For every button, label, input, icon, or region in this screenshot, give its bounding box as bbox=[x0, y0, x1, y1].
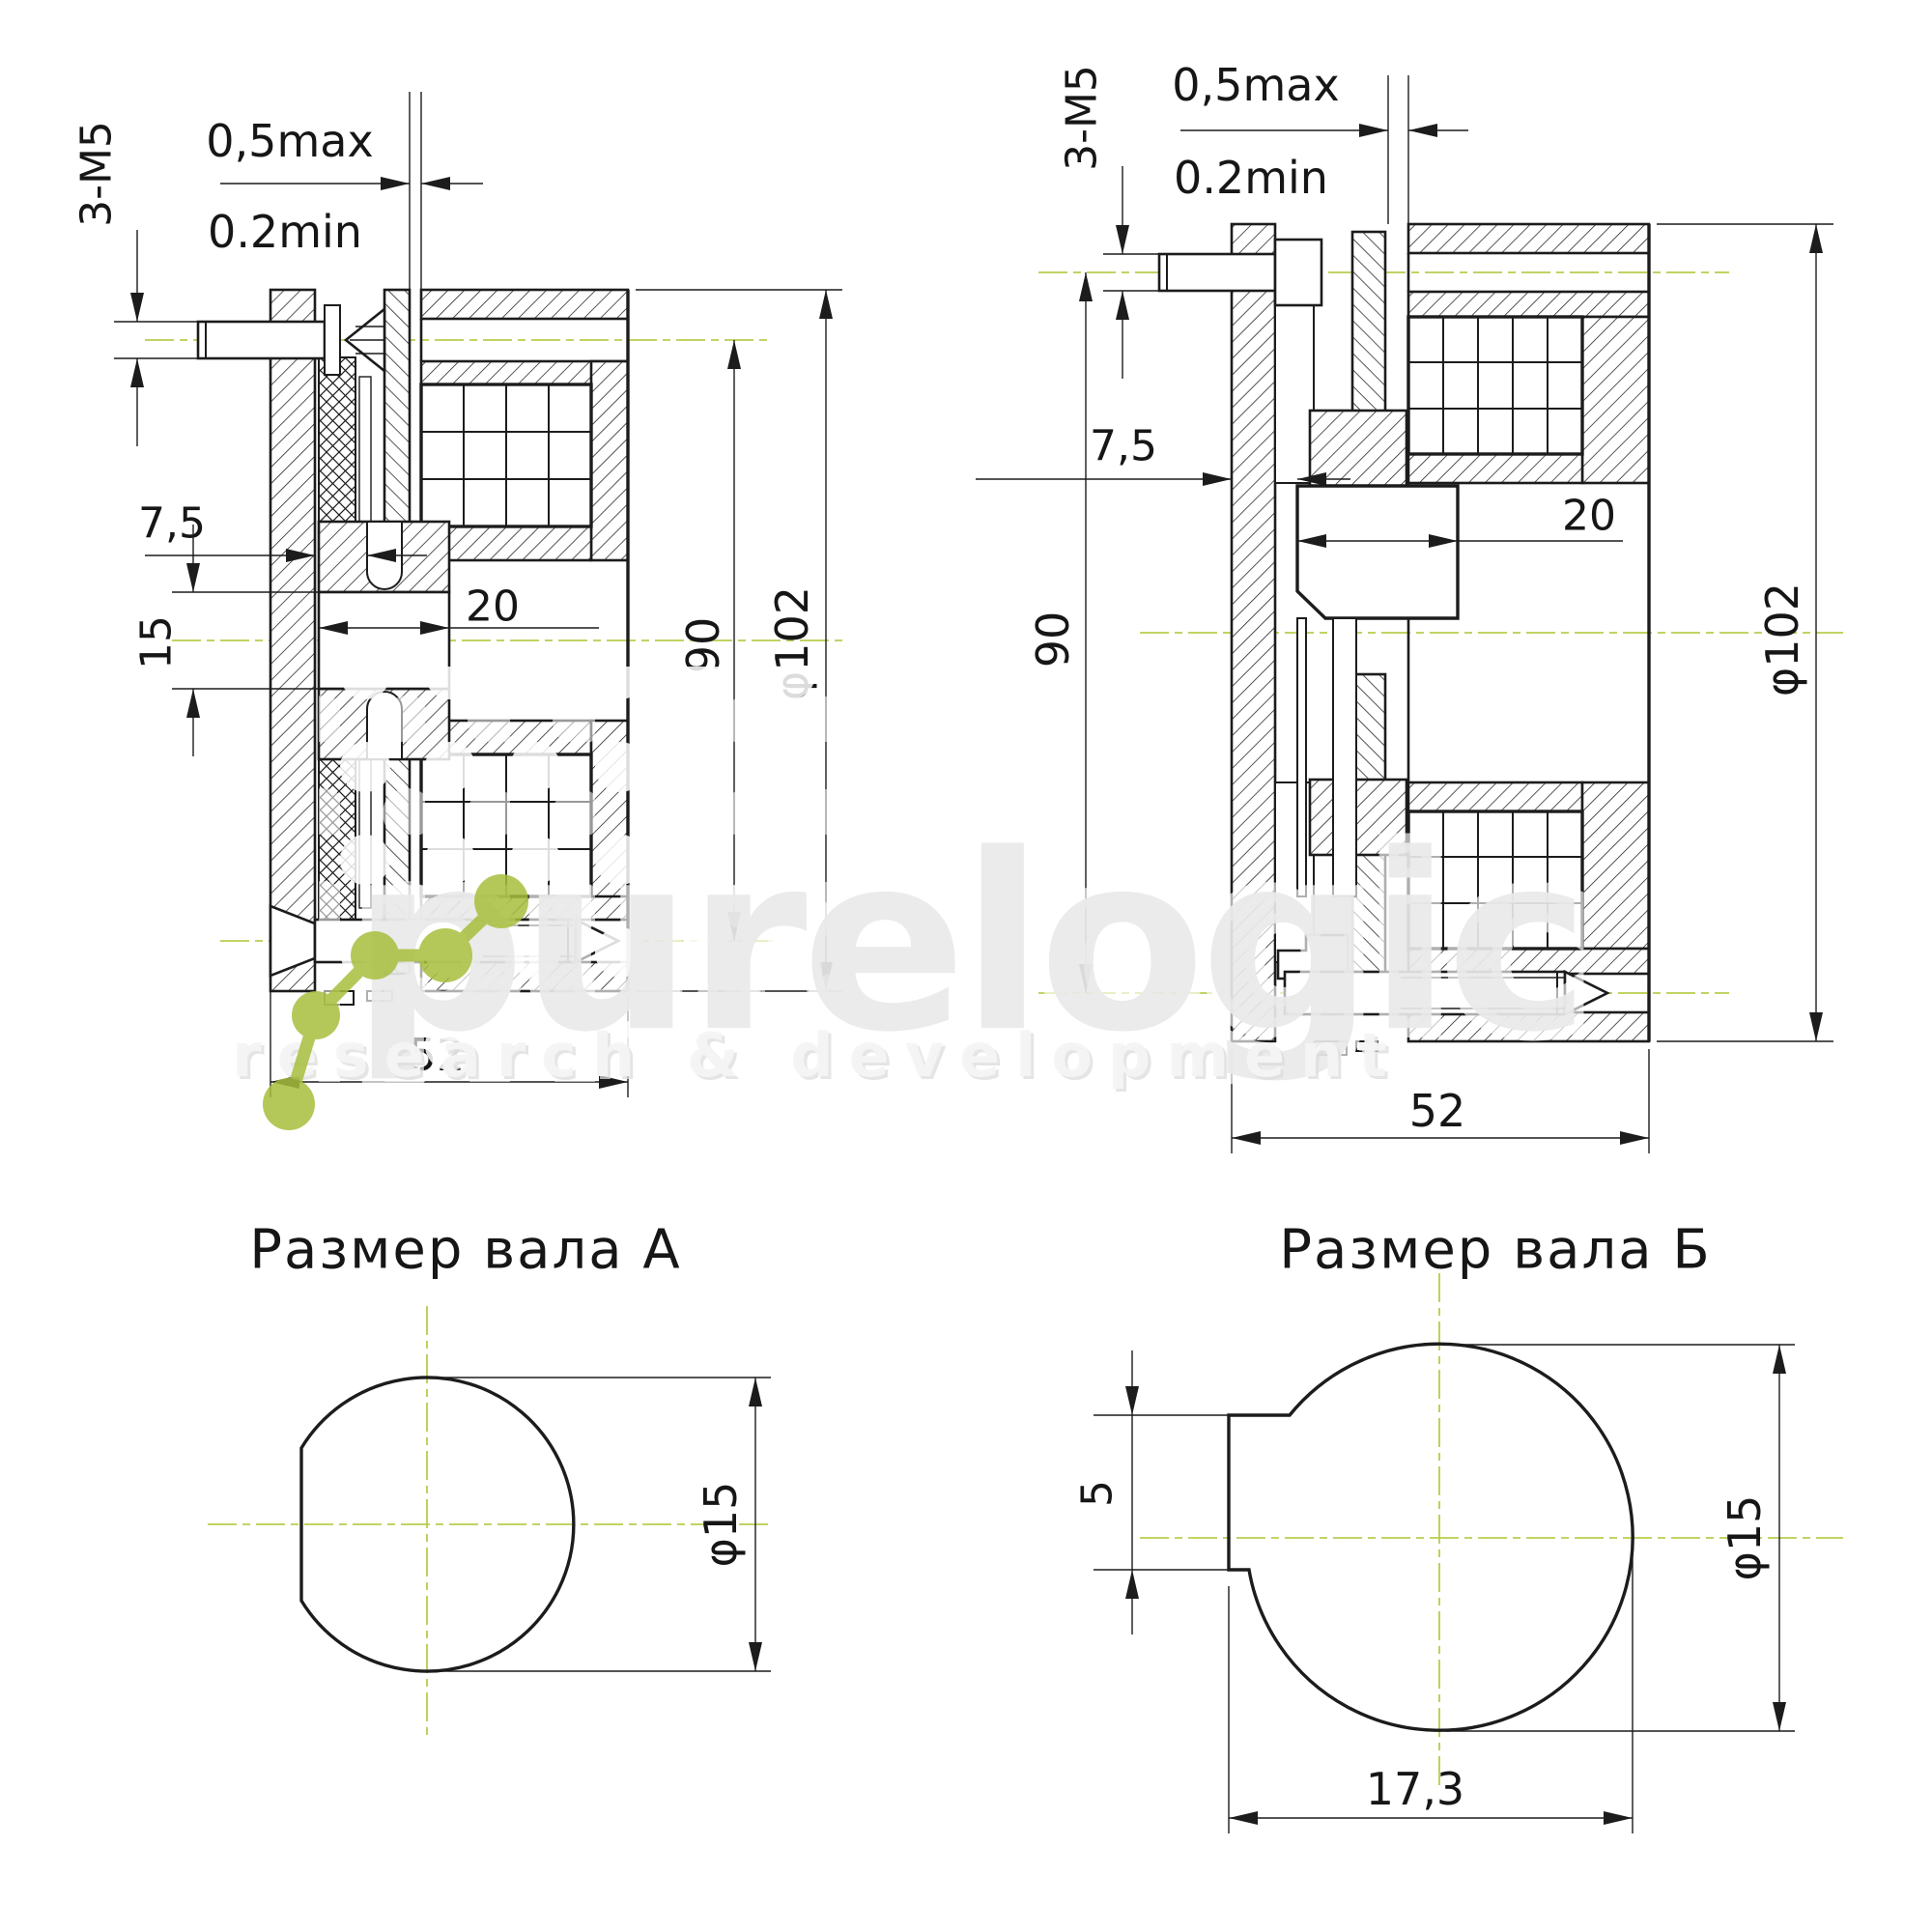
left-coil-top bbox=[421, 384, 591, 526]
right-gap-max-label: 0,5max bbox=[1172, 59, 1339, 111]
left-gap-max-label: 0,5max bbox=[206, 115, 373, 167]
technical-drawing-page: 0,5max 0.2min 3-M5 7,5 15 bbox=[0, 0, 1932, 1932]
left-bore-label: 15 bbox=[132, 615, 182, 669]
drawing-canvas: 0,5max 0.2min 3-M5 7,5 15 bbox=[0, 0, 1932, 1932]
shaft-b-dia-label: φ15 bbox=[1719, 1495, 1771, 1581]
left-gap-min-label: 0.2min bbox=[208, 206, 362, 258]
shaft-a-title: Размер вала А bbox=[249, 1219, 681, 1282]
left-bolt-spec-label: 3-M5 bbox=[72, 121, 122, 227]
right-bolt-spec-label: 3-M5 bbox=[1058, 65, 1107, 171]
left-hub-length-label: 20 bbox=[466, 582, 520, 632]
right-spacer-top bbox=[1275, 305, 1314, 483]
right-outer-dia-label: φ102 bbox=[1756, 582, 1808, 696]
right-length-label: 52 bbox=[1409, 1085, 1466, 1137]
shaft-a-dia-label: φ15 bbox=[695, 1482, 747, 1568]
right-bolt-circle-label: 90 bbox=[1027, 611, 1079, 668]
shaft-b-flat-label: 17,3 bbox=[1366, 1763, 1464, 1815]
watermark-tagline: research & development bbox=[232, 1020, 1403, 1091]
shaft-b-key-label: 5 bbox=[1073, 1480, 1122, 1507]
right-hub-length-label: 20 bbox=[1562, 492, 1616, 541]
right-offset-label: 7,5 bbox=[1090, 422, 1157, 471]
right-coil-top bbox=[1408, 317, 1582, 454]
shaft-b-title: Размер вала Б bbox=[1279, 1219, 1712, 1282]
right-gap-min-label: 0.2min bbox=[1174, 152, 1328, 204]
left-bolt-circle-label: 90 bbox=[677, 617, 729, 674]
left-offset-label: 7,5 bbox=[138, 499, 206, 549]
left-flange bbox=[270, 290, 315, 991]
